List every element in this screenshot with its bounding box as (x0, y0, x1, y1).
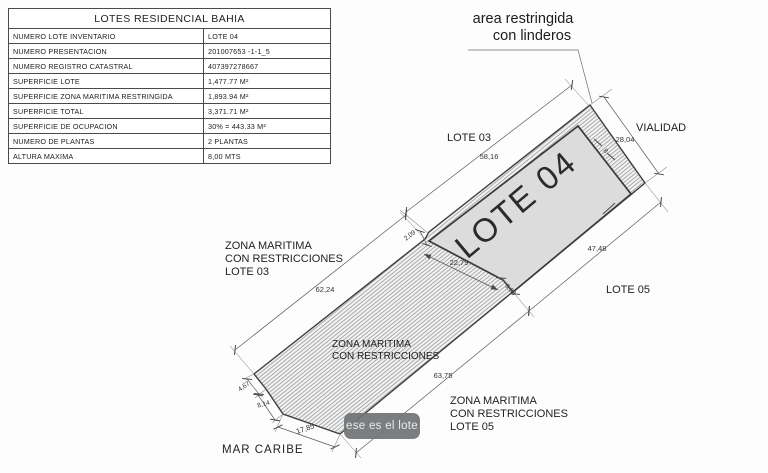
zona-bottom-line-2: CON RESTRICCIONES (450, 408, 568, 420)
dim-vialidad: 28,04 (616, 135, 635, 144)
label-vialidad: VIALIDAD (636, 122, 686, 134)
tooltip-text: ese es el lote (346, 420, 418, 432)
zona-left-line-1: ZONA MARITIMA (225, 240, 312, 252)
heading-leader-line (468, 50, 592, 103)
dim-bottom-edge-lower: 63,75 (434, 371, 453, 380)
dim-top-edge-lower: 62,24 (316, 285, 335, 294)
dim-coast-b: 8,14 (257, 399, 271, 409)
label-mar-caribe: MAR CARIBE (222, 444, 304, 456)
lot-annotation-tooltip: ese es el lote (344, 413, 420, 439)
zona-bottom-line-3: LOTE 05 (450, 421, 494, 433)
dim-coast-c: 17,85 (295, 421, 316, 436)
plan-document: LOTES RESIDENCIAL BAHIA NUMERO LOTE INVE… (0, 0, 768, 473)
heading-line-2: con linderos (493, 28, 571, 44)
label-lote-05: LOTE 05 (606, 284, 650, 296)
site-plan-drawing: 58,16 28,04 8 47,48 22,79 6,08 2,09 62,2… (0, 0, 768, 473)
label-zona-maritima-lote-03: ZONA MARITIMA CON RESTRICCIONES LOTE 03 (225, 240, 343, 278)
dim-top-edge-upper: 58,16 (480, 152, 499, 161)
zona-mid-line-2: CON RESTRICCIONES (332, 351, 440, 362)
zona-bottom-line-1: ZONA MARITIMA (450, 395, 537, 407)
dim-kink-step: 2,09 (403, 229, 418, 243)
zona-left-line-3: LOTE 03 (225, 266, 269, 278)
heading-line-1: area restringida (473, 11, 575, 27)
zona-left-line-2: CON RESTRICCIONES (225, 253, 343, 265)
dim-lot-bottom: 47,48 (588, 244, 607, 253)
label-zona-maritima-lote-05: ZONA MARITIMA CON RESTRICCIONES LOTE 05 (450, 395, 568, 433)
zona-mid-line-1: ZONA MARITIMA (332, 339, 411, 350)
label-lote-03: LOTE 03 (447, 132, 491, 144)
